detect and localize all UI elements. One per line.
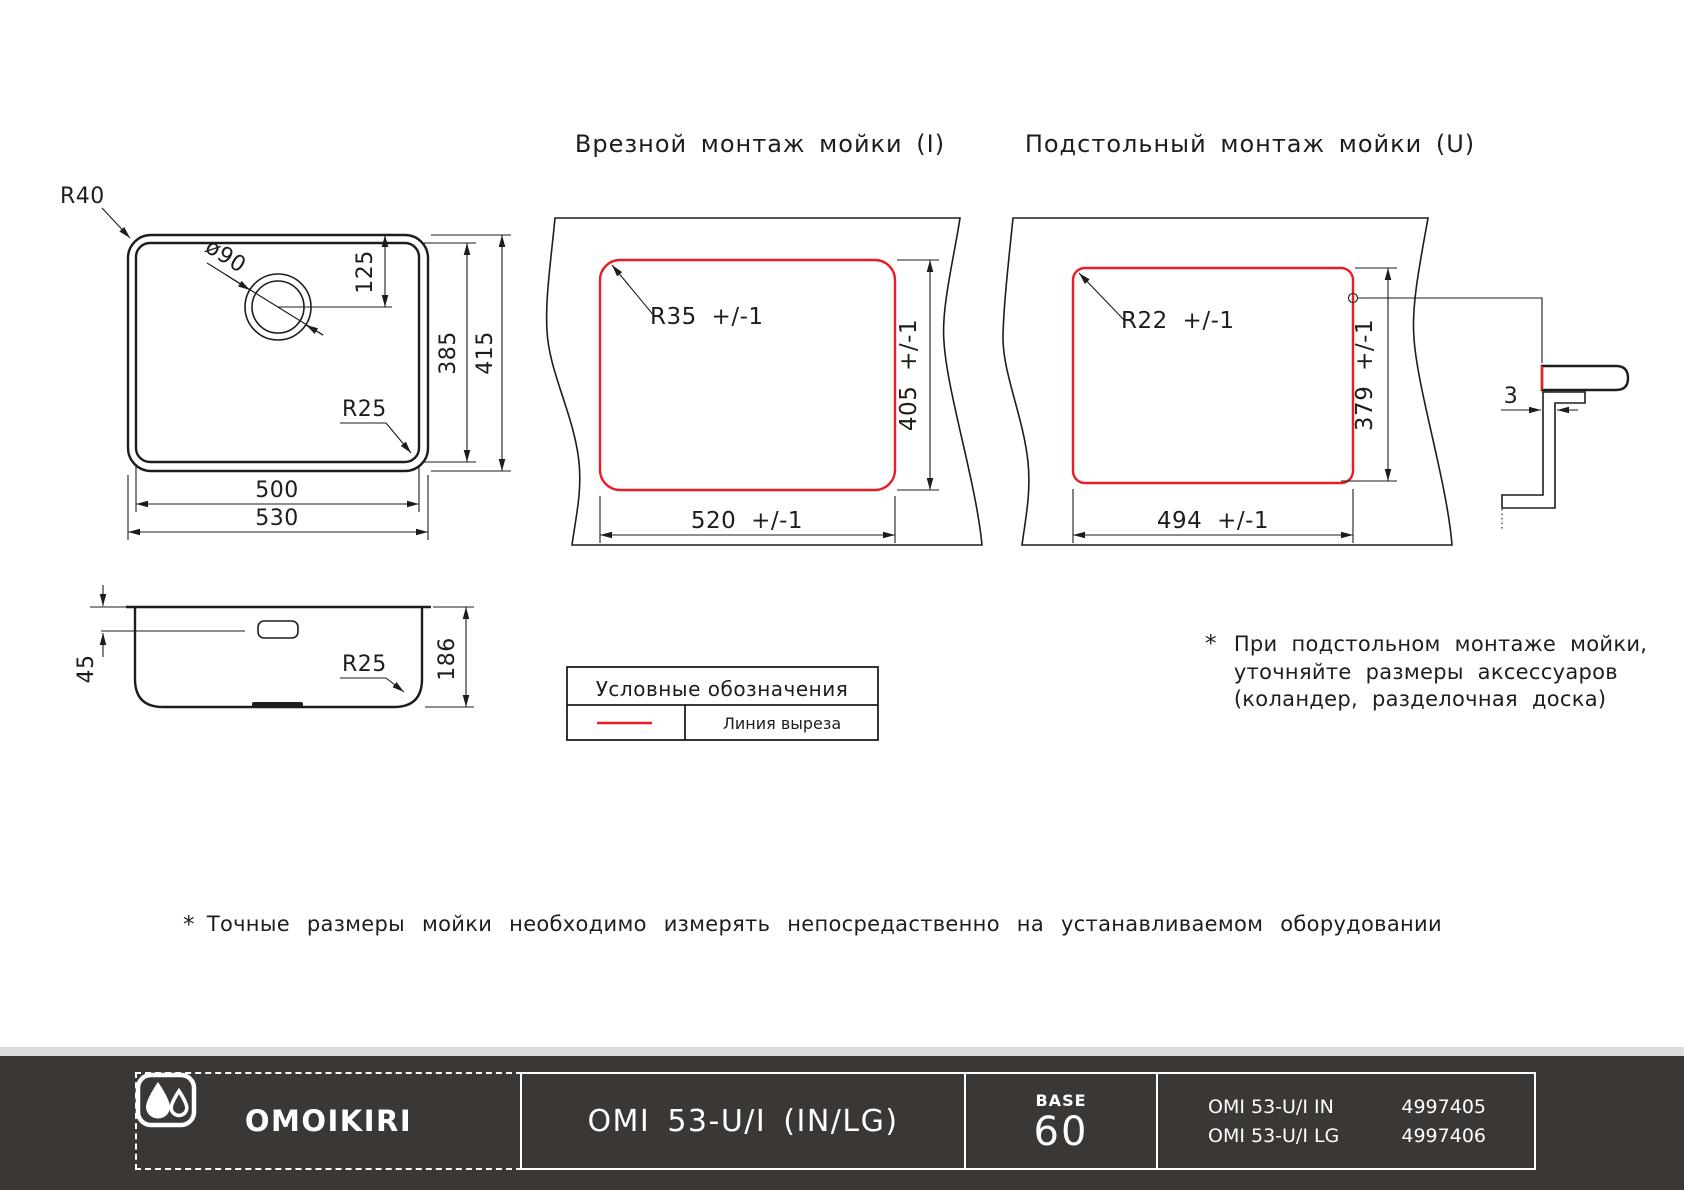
dim-125: 125 — [278, 235, 392, 307]
outer-width-label: 530 — [255, 506, 299, 531]
legend-title: Условные обозначения — [596, 677, 849, 701]
drain-diameter-label: ø90 — [201, 235, 251, 279]
base-label: BASE — [1035, 1091, 1086, 1110]
note-asterisk: * — [1205, 631, 1217, 714]
edge-gap-label: 3 — [1504, 384, 1519, 409]
dim-494: 494 +/-1 — [1073, 489, 1353, 543]
undermount-note-text: При подстольном монтаже мойки, уточняйте… — [1234, 631, 1647, 714]
inset-title: Врезной монтаж мойки (I) — [575, 130, 945, 158]
brand-name: OMOIKIRI — [245, 1104, 412, 1138]
dim-520: 520 +/-1 — [600, 496, 895, 543]
undermount-radius-label: R22 +/-1 — [1121, 308, 1235, 334]
note-line: При подстольном монтаже мойки, — [1234, 631, 1647, 659]
drain-stub — [252, 702, 303, 708]
outer-height-label: 415 — [473, 331, 498, 375]
undermount-width-label: 494 +/-1 — [1157, 508, 1269, 534]
cut-line-label: Линия выреза — [723, 714, 841, 733]
bowl-height-label: 385 — [436, 331, 461, 375]
cutout-line-undermount — [1073, 268, 1353, 483]
measurement-note-text: Точные размеры мойки необходимо измерять… — [207, 912, 1442, 938]
sink-outer-rim — [128, 235, 428, 471]
depth-label: 186 — [435, 637, 460, 681]
edge-detail-section: 3 — [1349, 294, 1629, 530]
dim-3: 3 — [1501, 384, 1578, 410]
base-cell: BASE 60 — [964, 1072, 1158, 1170]
brand-cell: OMOIKIRI — [135, 1072, 522, 1170]
bowl-width-label: 500 — [255, 478, 299, 503]
reference-line — [1358, 298, 1542, 363]
inset-radius-label: R35 +/-1 — [650, 304, 764, 330]
sku-code: 4997406 — [1401, 1125, 1486, 1147]
inset-width-label: 520 +/-1 — [691, 508, 803, 534]
side-view-drawing: 45 186 R25 — [74, 585, 474, 708]
note-line: уточняйте размеры аксессуаров — [1234, 659, 1647, 687]
measurement-note: * Точные размеры мойки необходимо измеря… — [183, 912, 1442, 938]
overflow-depth-label: 45 — [74, 655, 99, 684]
spec-sheet: ø90 R40 125 385 415 R25 — [0, 0, 1684, 1190]
title-block-table: OMOIKIRI OMI 53-U/I (IN/LG) BASE 60 OMI … — [135, 1072, 1542, 1170]
base-value: 60 — [1034, 1112, 1089, 1152]
dim-186: 186 — [425, 607, 474, 707]
dim-r40: R40 — [60, 184, 130, 238]
inset-mount-drawing: Врезной монтаж мойки (I) R35 +/-1 405 +/… — [547, 130, 982, 545]
dim-r35: R35 +/-1 — [612, 265, 764, 330]
cutout-line-inset — [600, 260, 895, 490]
footer-top-strip — [0, 1047, 1684, 1056]
inset-height-label: 405 +/-1 — [896, 319, 922, 431]
sku-row: OMI 53-U/I LG 4997406 — [1158, 1125, 1534, 1147]
sku-name: OMI 53-U/I IN — [1208, 1096, 1334, 1118]
undermount-drawing: Подстольный монтаж мойки (U) R22 +/-1 37… — [1003, 130, 1628, 545]
dim-r22: R22 +/-1 — [1079, 273, 1235, 334]
r25-label: R25 — [342, 397, 387, 422]
dim-45: 45 — [74, 585, 126, 684]
legend-box: Условные обозначения Линия выреза — [567, 667, 878, 740]
technical-drawing: ø90 R40 125 385 415 R25 — [0, 0, 1684, 1050]
undermount-height-label: 379 +/-1 — [1352, 319, 1378, 431]
sku-name: OMI 53-U/I LG — [1208, 1125, 1339, 1147]
r25-bottom-label: R25 — [342, 652, 387, 677]
dim-405: 405 +/-1 — [896, 260, 939, 490]
r40-label: R40 — [60, 184, 105, 209]
note-asterisk: * — [183, 912, 195, 938]
sku-code: 4997405 — [1401, 1096, 1486, 1118]
sku-cell: OMI 53-U/I IN 4997405 OMI 53-U/I LG 4997… — [1156, 1072, 1536, 1170]
model-cell: OMI 53-U/I (IN/LG) — [520, 1072, 966, 1170]
dim-drain-diameter: ø90 — [201, 235, 323, 335]
sink-rim-section — [1542, 366, 1628, 390]
undermount-note: * При подстольном монтаже мойки, уточняй… — [1205, 631, 1647, 714]
countertop-section-hatched — [1502, 392, 1585, 508]
model-name: OMI 53-U/I (IN/LG) — [587, 1104, 898, 1139]
title-block-bar: OMOIKIRI OMI 53-U/I (IN/LG) BASE 60 OMI … — [0, 1056, 1684, 1190]
sku-row: OMI 53-U/I IN 4997405 — [1158, 1096, 1534, 1118]
top-view-drawing: ø90 R40 125 385 415 R25 — [60, 184, 511, 540]
dim-r25-side: R25 — [340, 652, 404, 692]
dim-r25-top: R25 — [340, 397, 411, 453]
drain-offset-label: 125 — [353, 250, 378, 294]
overflow-hole — [258, 621, 298, 638]
omoikiri-logo-icon — [135, 1072, 197, 1128]
dim-385: 385 — [422, 243, 476, 462]
undermount-title: Подстольный монтаж мойки (U) — [1025, 130, 1475, 158]
note-line: (коландер, разделочная доска) — [1234, 686, 1647, 714]
